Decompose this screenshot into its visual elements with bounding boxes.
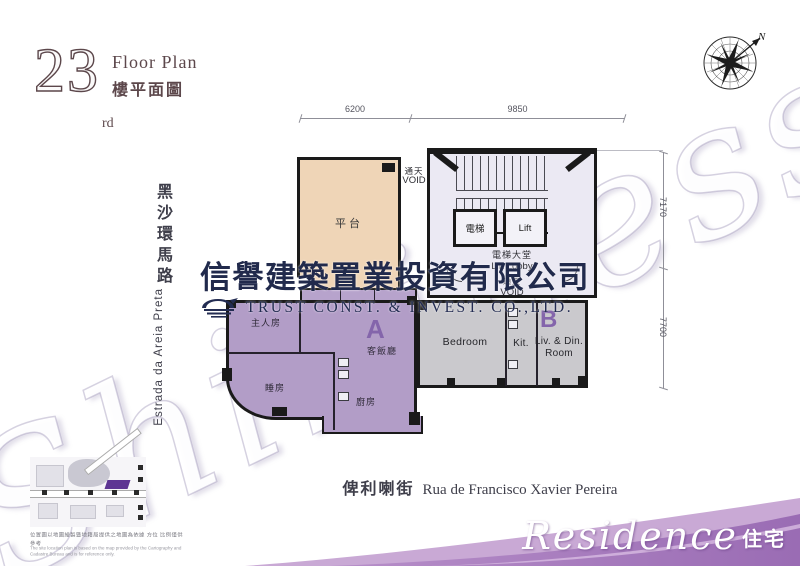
- brand-script: Residence: [522, 514, 738, 558]
- brand-chinese: 住宅: [742, 523, 786, 552]
- footer-band: Residence 住宅: [0, 0, 800, 566]
- floorplan-page: Shininess 6200 9850 7170 7700 平台 通天 VOID: [0, 0, 800, 566]
